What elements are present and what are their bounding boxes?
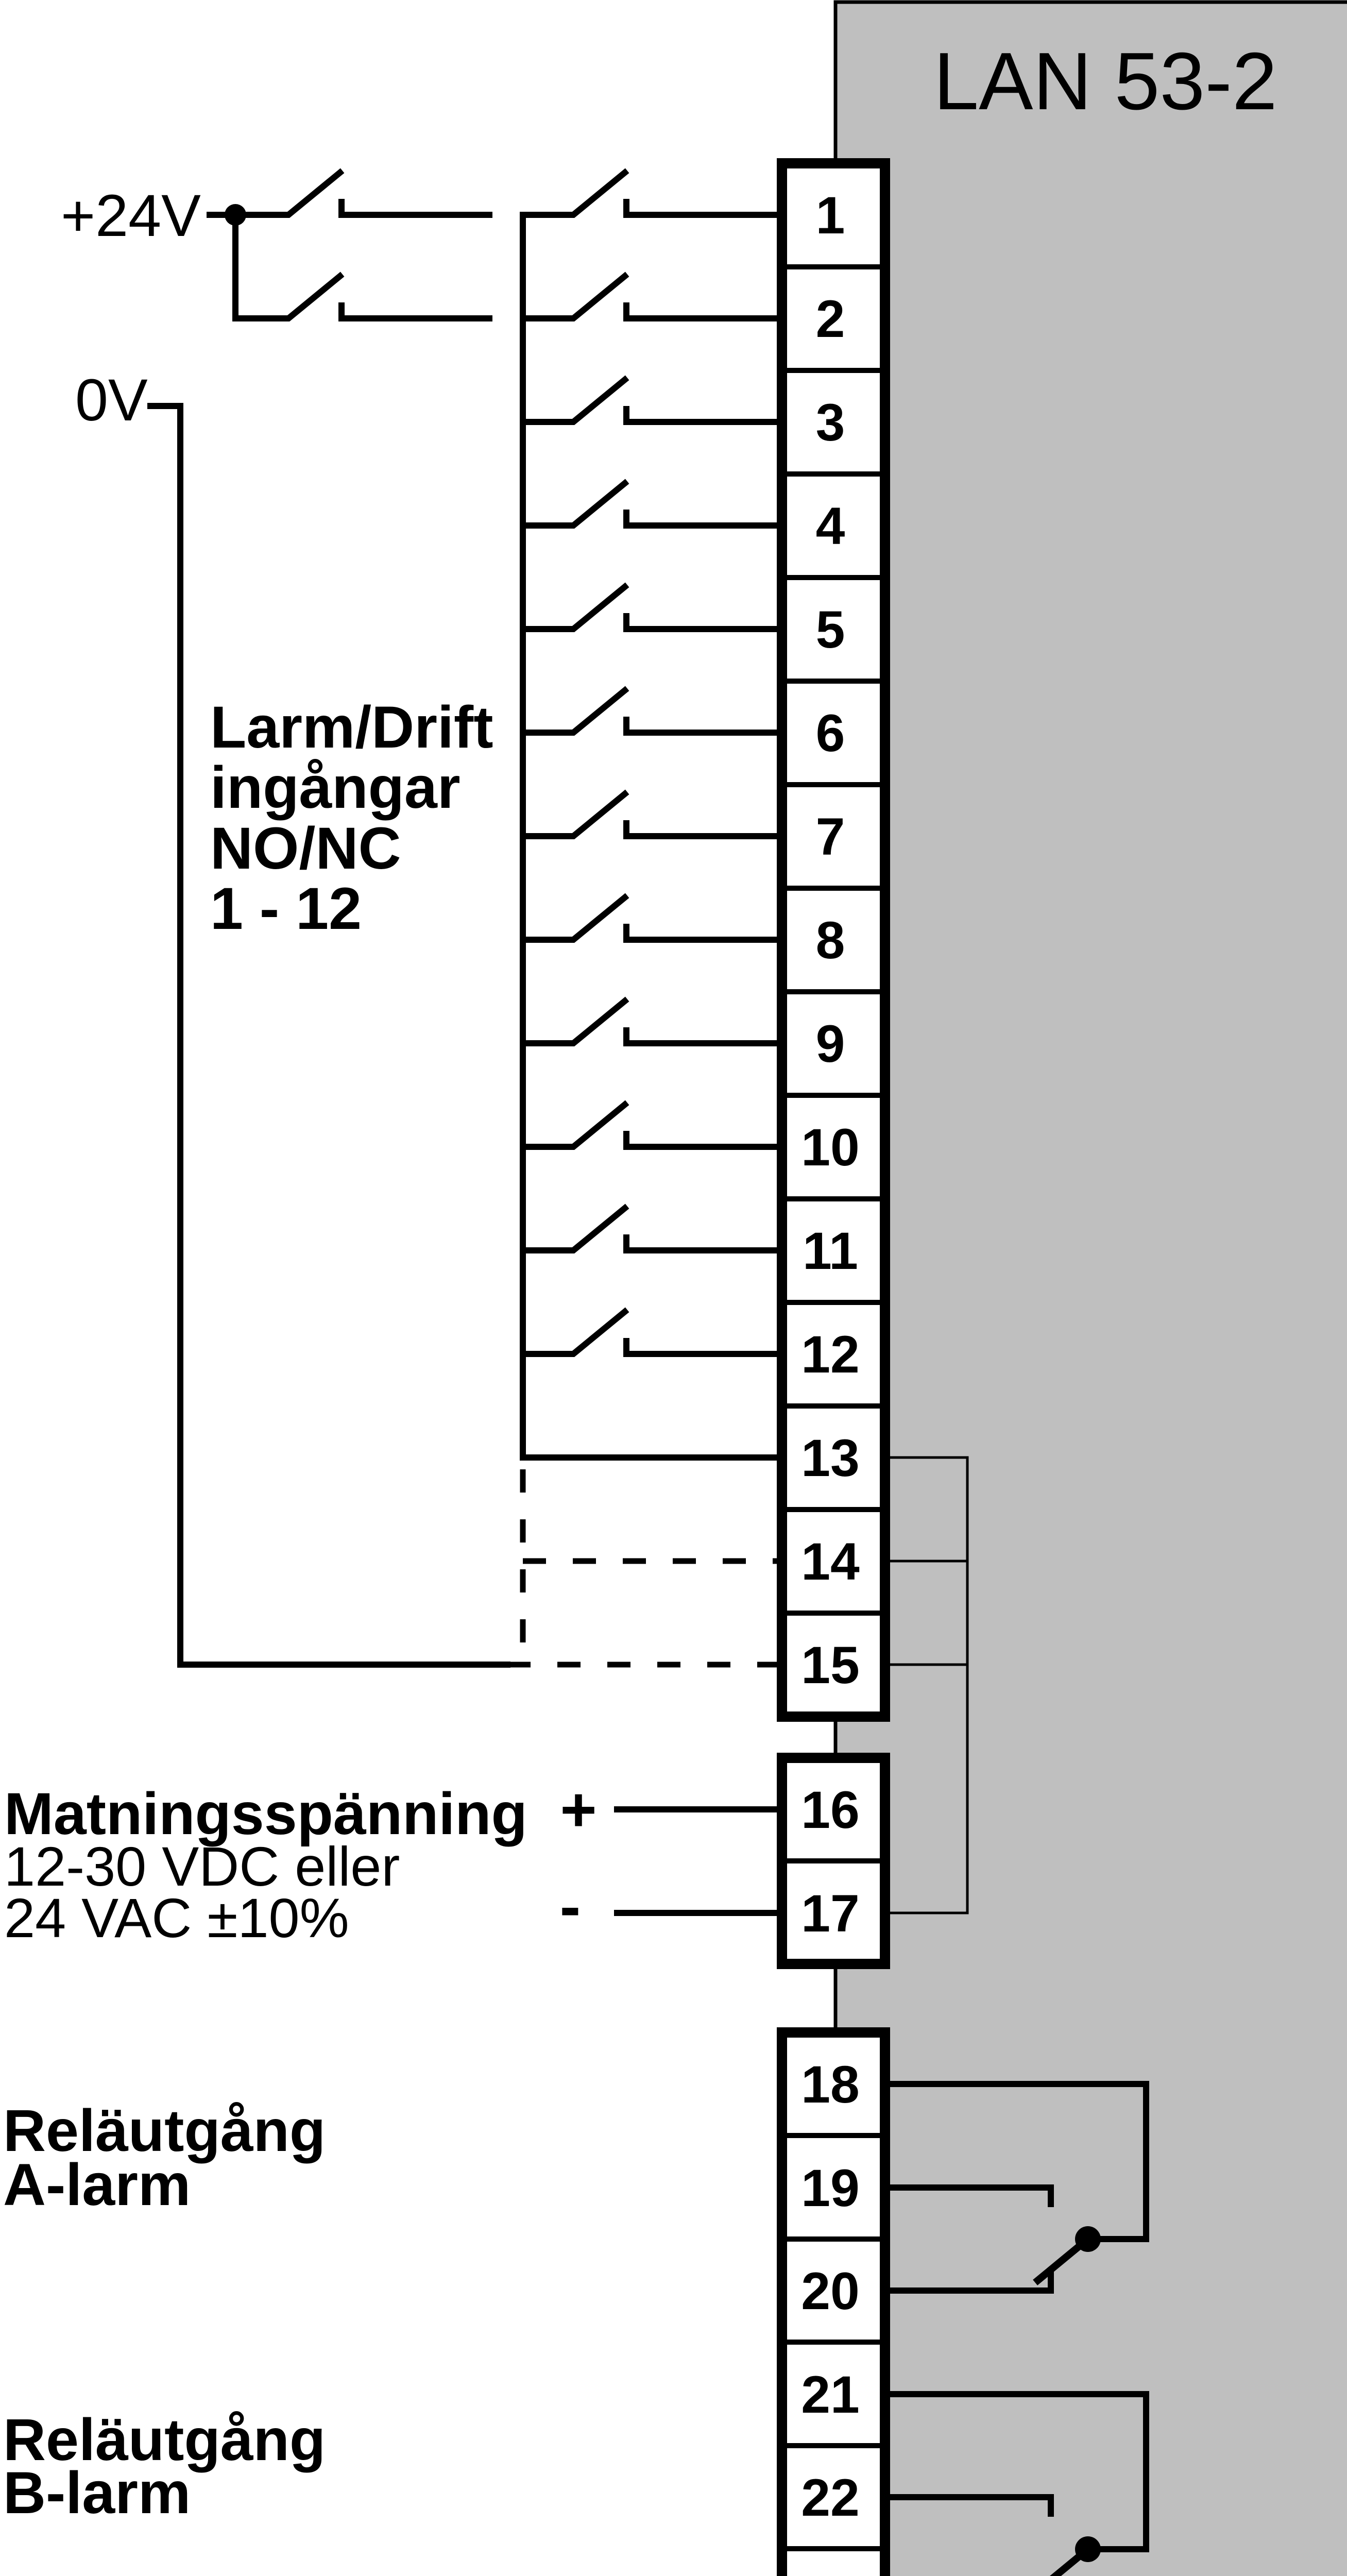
supply-label-line3: 24 VAC ±10%: [4, 1887, 349, 1949]
minus-sign: -: [560, 1871, 581, 1941]
terminal-17: 17: [801, 1884, 859, 1943]
input-switch-1a-icon: [210, 173, 489, 215]
input-switch-4-icon: [523, 483, 780, 526]
input-switch-9-icon: [523, 1001, 780, 1043]
plus24v-label: +24V: [61, 183, 201, 249]
terminal-12: 12: [801, 1325, 859, 1384]
terminal-2: 2: [816, 290, 845, 348]
input-switch-7-icon: [523, 794, 780, 836]
input-switch-3-icon: [523, 380, 780, 422]
inputs-label-line4: 1 - 12: [210, 876, 362, 942]
terminal-block-18-23: 18 19 20 21 22 23: [782, 2032, 885, 2576]
relay-a-label-line2: A-larm: [3, 2152, 191, 2218]
terminal-14: 14: [801, 1532, 860, 1591]
terminal-19: 19: [801, 2159, 859, 2217]
input-switch-11-icon: [523, 1208, 780, 1250]
input-circuit: +24V 0V Larm/Drift ingångar NO/NC 1 - 12: [61, 173, 780, 1665]
terminal-1: 1: [816, 186, 845, 245]
relay-b-label-line2: B-larm: [3, 2460, 191, 2526]
input-switch-1b-icon: [523, 173, 780, 215]
plus-sign: +: [560, 1774, 596, 1844]
terminal-block-1-15: 1 2 3 4 5 6 7 8 9 10 11 12 13 14 15: [782, 163, 885, 1717]
terminal-block-16-17: 16 17: [782, 1758, 885, 1964]
input-switch-2a-icon: [235, 215, 489, 318]
terminal-13: 13: [801, 1429, 859, 1487]
terminal-21: 21: [801, 2365, 859, 2424]
zero-volt-label: 0V: [75, 367, 148, 433]
inputs-label-line3: NO/NC: [210, 816, 401, 882]
input-switch-2b-icon: [523, 276, 780, 318]
terminal-4: 4: [816, 497, 845, 555]
terminal-10: 10: [801, 1118, 859, 1177]
input-switch-8-icon: [523, 897, 780, 940]
zero-volt-wire: [150, 406, 507, 1665]
terminal-11: 11: [803, 1222, 858, 1280]
terminal-6: 6: [816, 704, 845, 762]
terminal-8: 8: [816, 911, 845, 970]
input-switch-6-icon: [523, 690, 780, 733]
terminal-20: 20: [801, 2262, 859, 2320]
input-switch-5-icon: [523, 587, 780, 629]
terminal-16: 16: [801, 1781, 859, 1839]
terminal-15: 15: [801, 1636, 859, 1694]
terminal-23: 23: [801, 2572, 859, 2576]
input-switch-10-icon: [523, 1105, 780, 1147]
inputs-label-line2: ingångar: [210, 755, 461, 821]
device-title: LAN 53-2: [933, 36, 1277, 127]
supply-circuit: Matningsspänning 12-30 VDC eller 24 VAC …: [4, 1774, 780, 1949]
terminal-7: 7: [816, 807, 845, 866]
wiring-diagram: LAN 53-2 +24V 0V Larm/Drift ingångar NO/…: [0, 0, 1347, 2576]
inputs-label-line1: Larm/Drift: [210, 694, 493, 760]
terminal-9: 9: [816, 1014, 845, 1073]
terminal-5: 5: [816, 600, 845, 659]
terminal-22: 22: [801, 2468, 859, 2527]
input-switch-12-icon: [523, 1312, 780, 1354]
terminal-18: 18: [801, 2055, 859, 2114]
terminal-3: 3: [816, 393, 845, 452]
